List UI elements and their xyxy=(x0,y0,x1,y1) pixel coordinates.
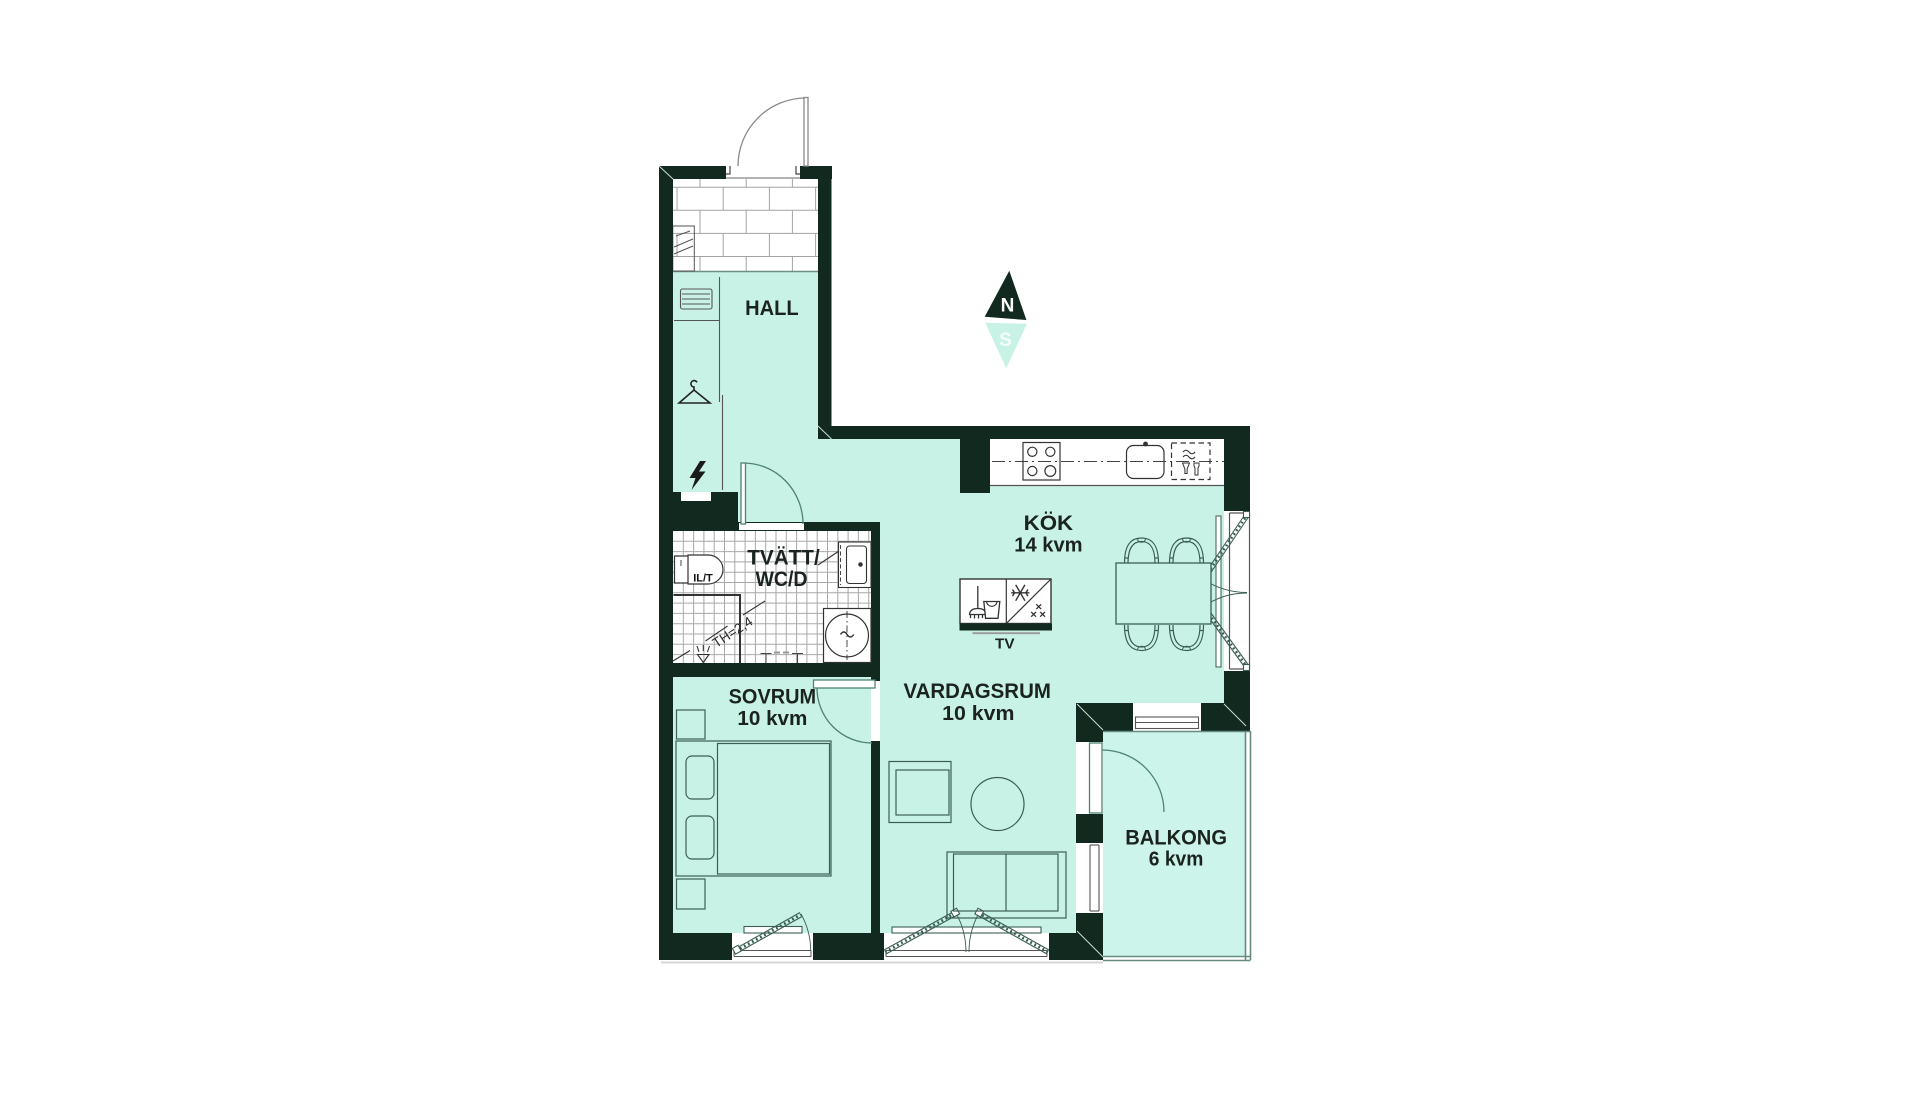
svg-text:6 kvm: 6 kvm xyxy=(1149,847,1204,870)
svg-text:S: S xyxy=(999,330,1012,351)
svg-text:14 kvm: 14 kvm xyxy=(1014,533,1082,556)
svg-text:KÖK: KÖK xyxy=(1024,512,1074,535)
svg-text:N: N xyxy=(1001,296,1015,317)
svg-text:TVÄTT/: TVÄTT/ xyxy=(747,547,820,570)
svg-text:TV: TV xyxy=(995,636,1015,653)
svg-text:WC/D: WC/D xyxy=(756,568,808,591)
svg-text:BALKONG: BALKONG xyxy=(1125,827,1227,850)
svg-text:10 kvm: 10 kvm xyxy=(942,702,1014,725)
svg-text:10 kvm: 10 kvm xyxy=(737,707,807,730)
svg-text:SOVRUM: SOVRUM xyxy=(729,686,817,709)
svg-text:IL/T: IL/T xyxy=(693,573,713,585)
svg-text:VARDAGSRUM: VARDAGSRUM xyxy=(904,680,1051,703)
svg-text:HALL: HALL xyxy=(745,297,799,320)
